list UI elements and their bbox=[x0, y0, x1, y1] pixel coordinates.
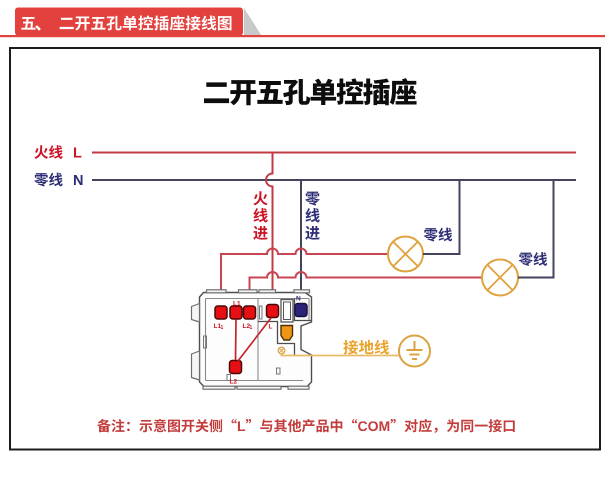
svg-text:L2: L2 bbox=[230, 379, 238, 386]
svg-text:L: L bbox=[269, 324, 273, 331]
svg-text:L1: L1 bbox=[233, 300, 241, 307]
svg-text:N: N bbox=[296, 296, 301, 303]
svg-text:1: 1 bbox=[250, 325, 253, 331]
svg-text:1: 1 bbox=[221, 325, 224, 331]
